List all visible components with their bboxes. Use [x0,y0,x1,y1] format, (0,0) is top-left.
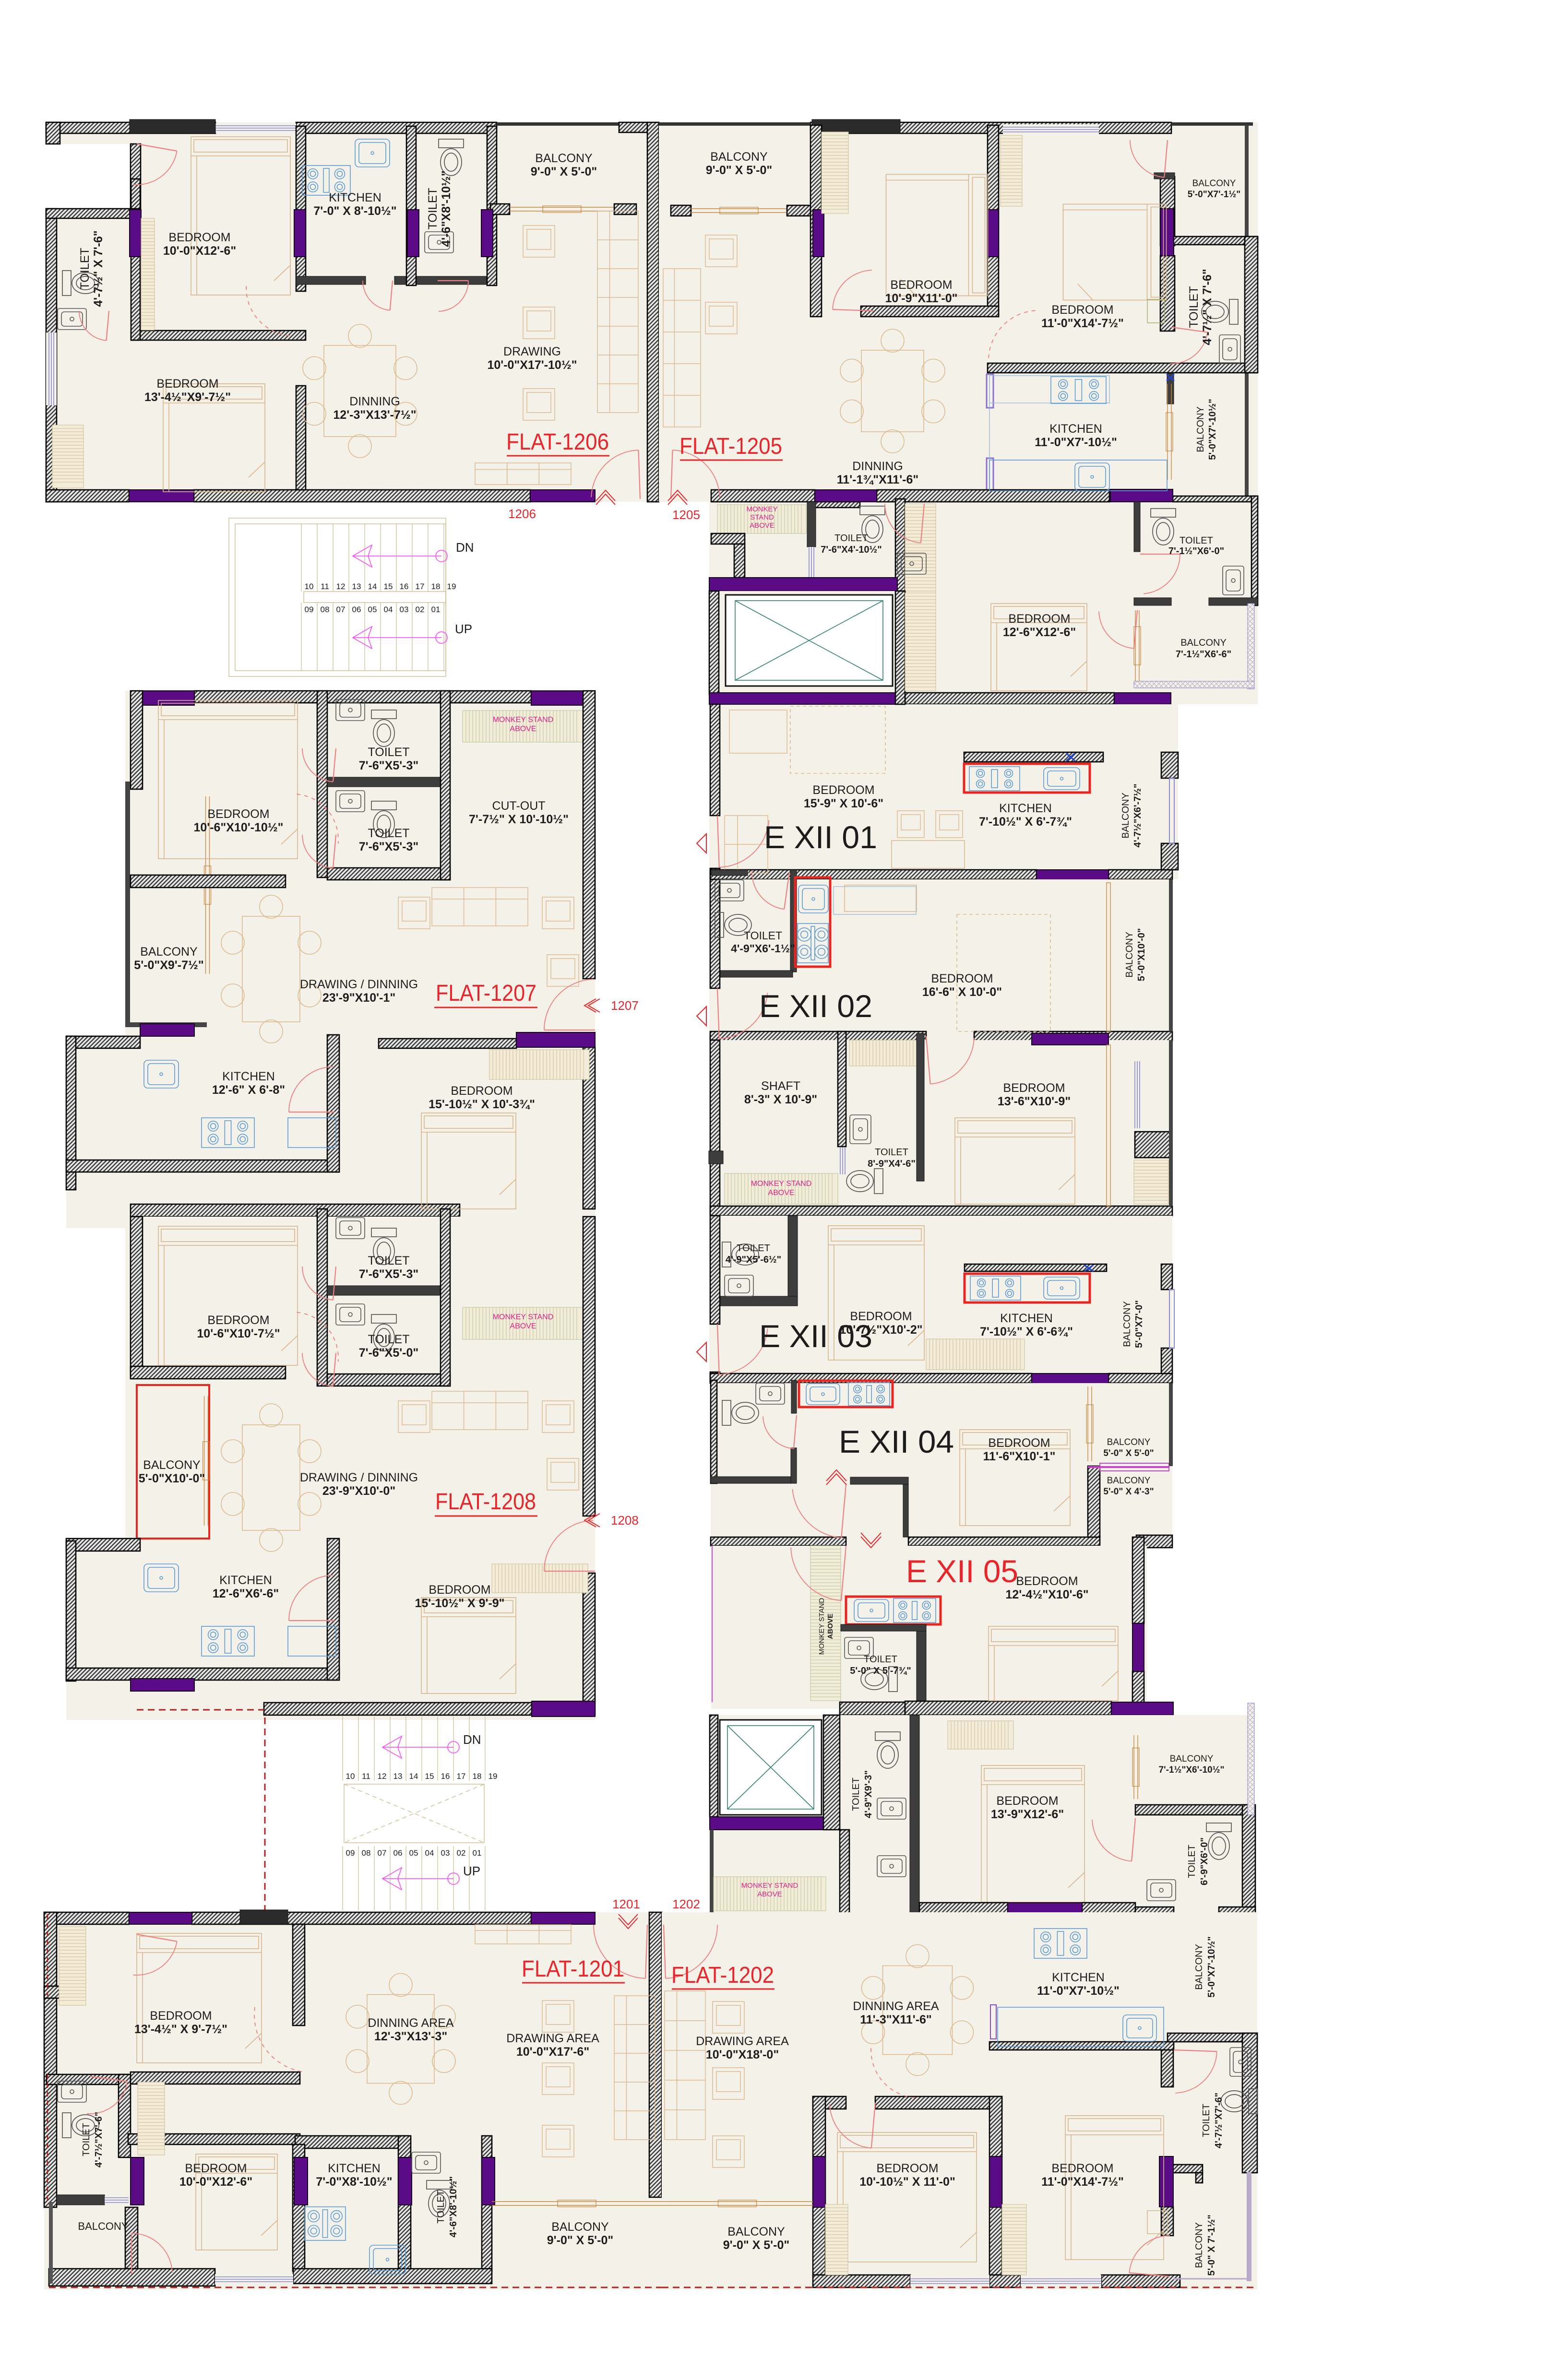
svg-text:7'-6"X5'-0": 7'-6"X5'-0" [359,1346,419,1360]
svg-text:KITCHEN: KITCHEN [219,1574,272,1587]
svg-text:10'-6"X10'-10½": 10'-6"X10'-10½" [193,821,283,834]
svg-text:BALCONY: BALCONY [1180,638,1227,648]
svg-text:13: 13 [352,582,361,591]
svg-text:5'-0"X10'-0": 5'-0"X10'-0" [139,1472,205,1485]
svg-text:18: 18 [473,1772,482,1781]
svg-text:11'-0"X14'-7½": 11'-0"X14'-7½" [1041,2175,1124,2189]
svg-text:05: 05 [409,1848,418,1858]
svg-text:DN: DN [456,540,474,555]
svg-text:06: 06 [393,1848,403,1858]
svg-text:10'-10½" X 11'-0": 10'-10½" X 11'-0" [859,2175,955,2189]
svg-text:7'-6"X5'-3": 7'-6"X5'-3" [359,759,419,772]
svg-text:BALCONY: BALCONY [78,2220,128,2232]
svg-text:5'-0"X7'-0": 5'-0"X7'-0" [1134,1300,1144,1348]
svg-text:BALCONY: BALCONY [1122,1301,1132,1347]
svg-text:STAND: STAND [750,513,774,521]
svg-text:DINNING AREA: DINNING AREA [853,2000,939,2013]
svg-text:10'-0"X12'-6": 10'-0"X12'-6" [179,2175,252,2189]
svg-text:13'-6"X10'-9": 13'-6"X10'-9" [998,1095,1071,1108]
svg-text:MONKEY: MONKEY [746,505,777,513]
svg-text:TOILET: TOILET [744,929,782,942]
svg-text:TOILET: TOILET [834,533,868,544]
svg-text:TOILET: TOILET [875,1147,908,1158]
svg-text:14: 14 [368,582,377,591]
svg-text:08: 08 [321,605,330,614]
svg-text:BEDROOM: BEDROOM [1003,1081,1065,1095]
svg-text:12'-3"X13'-7½": 12'-3"X13'-7½" [333,408,416,422]
svg-text:DRAWING AREA: DRAWING AREA [506,2032,599,2045]
svg-text:BALCONY: BALCONY [1124,932,1135,978]
svg-text:17: 17 [457,1772,466,1781]
svg-text:12'-6" X 6'-8": 12'-6" X 6'-8" [212,1083,285,1097]
svg-text:5'-0"X7'-1½": 5'-0"X7'-1½" [1188,189,1241,200]
svg-text:1205: 1205 [672,508,700,522]
svg-text:11'-0"X7'-10½": 11'-0"X7'-10½" [1035,436,1117,449]
svg-text:CUT-OUT: CUT-OUT [492,799,545,813]
svg-text:DINNING: DINNING [349,395,400,408]
svg-text:7'-6"X4'-10½": 7'-6"X4'-10½" [821,545,882,555]
svg-text:DN: DN [463,1732,481,1747]
svg-text:BEDROOM: BEDROOM [207,1314,269,1327]
svg-text:11'-0"X14'-7½": 11'-0"X14'-7½" [1041,317,1124,330]
svg-text:01: 01 [473,1848,482,1858]
svg-text:9'-0" X 5'-0": 9'-0" X 5'-0" [547,2234,613,2247]
svg-text:23'-9"X10'-1": 23'-9"X10'-1" [322,991,395,1005]
svg-text:12'-3"X13'-3": 12'-3"X13'-3" [374,2030,447,2043]
svg-text:16'-6" X 10'-0": 16'-6" X 10'-0" [922,985,1002,999]
svg-text:8'-9"X4'-6": 8'-9"X4'-6" [868,1159,916,1169]
svg-text:SHAFT: SHAFT [761,1079,800,1093]
svg-text:ABOVE: ABOVE [750,521,775,530]
svg-text:UP: UP [463,1864,480,1878]
svg-text:17: 17 [416,582,425,591]
svg-text:7'-6"X5'-3": 7'-6"X5'-3" [359,1267,419,1281]
svg-text:5'-0" X 4'-3": 5'-0" X 4'-3" [1103,1487,1154,1497]
svg-text:1202: 1202 [672,1897,700,1911]
svg-text:05: 05 [368,605,377,614]
svg-text:10: 10 [305,582,314,591]
svg-text:4'-9"X9'-3": 4'-9"X9'-3" [863,1770,874,1818]
svg-text:KITCHEN: KITCHEN [1049,422,1102,436]
svg-text:04: 04 [425,1848,434,1858]
svg-text:11: 11 [321,582,329,591]
svg-text:BALCONY: BALCONY [1107,1476,1151,1486]
svg-text:TOILET: TOILET [1180,535,1213,546]
svg-text:5'-0" X 7'-1½": 5'-0" X 7'-1½" [1206,2214,1217,2275]
svg-text:4'-9"X5'-6½": 4'-9"X5'-6½" [726,1255,781,1265]
svg-text:03: 03 [441,1848,450,1858]
svg-text:BEDROOM: BEDROOM [150,2009,212,2023]
svg-text:13'-4½"X9'-7½": 13'-4½"X9'-7½" [144,391,231,404]
svg-text:10'-0"X12'-6": 10'-0"X12'-6" [163,244,236,258]
svg-text:KITCHEN: KITCHEN [1052,1971,1105,1984]
svg-text:6'-9"X6'-0": 6'-9"X6'-0" [1199,1837,1210,1885]
svg-text:BEDROOM: BEDROOM [429,1583,490,1597]
svg-text:TOILET: TOILET [737,1243,770,1254]
svg-text:BEDROOM: BEDROOM [168,231,230,244]
svg-text:11'-3"X11'-6": 11'-3"X11'-6" [860,2013,932,2026]
svg-text:09: 09 [305,605,314,614]
svg-text:10: 10 [346,1772,355,1781]
svg-text:4'-9"X6'-1½": 4'-9"X6'-1½" [731,942,795,955]
svg-text:7'-1½"X6'-0": 7'-1½"X6'-0" [1168,546,1224,557]
svg-text:12'-6"X6'-6": 12'-6"X6'-6" [213,1587,279,1600]
svg-text:4'-7½"X7'-6": 4'-7½"X7'-6" [94,2112,104,2167]
svg-text:19: 19 [447,582,456,591]
svg-text:5'-0"X7'-10½": 5'-0"X7'-10½" [1207,399,1218,460]
svg-text:11: 11 [362,1772,370,1781]
svg-text:5'-0" X 5'-7¾": 5'-0" X 5'-7¾" [850,1666,911,1676]
svg-text:DRAWING: DRAWING [503,345,561,358]
svg-text:12'-6"X12'-6": 12'-6"X12'-6" [1003,626,1076,639]
svg-text:FLAT-1207: FLAT-1207 [436,981,536,1006]
svg-text:E XII 01: E XII 01 [764,819,877,855]
svg-text:E XII 05: E XII 05 [906,1553,1018,1589]
svg-text:14: 14 [409,1772,418,1781]
svg-text:FLAT-1201: FLAT-1201 [522,1956,624,1982]
svg-text:BEDROOM: BEDROOM [185,2162,247,2175]
svg-text:4'-7½" X 7'-6": 4'-7½" X 7'-6" [92,230,105,307]
svg-text:MONKEY STAND: MONKEY STAND [751,1180,812,1188]
svg-text:DINNING AREA: DINNING AREA [368,2016,454,2030]
svg-text:07: 07 [336,605,346,614]
svg-text:BALCONY: BALCONY [535,152,593,165]
svg-text:KITCHEN: KITCHEN [329,191,381,204]
svg-text:4'-6"X8'-10½": 4'-6"X8'-10½" [448,2176,459,2237]
svg-text:1206: 1206 [508,507,536,521]
svg-text:KITCHEN: KITCHEN [999,802,1052,815]
svg-text:BEDROOM: BEDROOM [207,807,269,821]
svg-text:9'-0" X 5'-0": 9'-0" X 5'-0" [706,164,772,177]
svg-text:9'-0" X 5'-0": 9'-0" X 5'-0" [723,2238,789,2252]
svg-text:BEDROOM: BEDROOM [156,377,218,391]
svg-text:23'-9"X10'-0": 23'-9"X10'-0" [322,1484,395,1498]
svg-text:DRAWING AREA: DRAWING AREA [696,2035,789,2048]
svg-text:BEDROOM: BEDROOM [876,2162,938,2175]
svg-text:BALCONY: BALCONY [1192,178,1236,189]
svg-text:E XII 03: E XII 03 [759,1318,872,1354]
svg-text:4'-7½" X 7'-6": 4'-7½" X 7'-6" [1201,269,1214,345]
svg-text:BALCONY: BALCONY [1170,1754,1214,1764]
svg-text:MONKEY STAND: MONKEY STAND [741,1882,798,1890]
svg-text:12: 12 [336,582,346,591]
svg-text:12: 12 [378,1772,387,1781]
svg-text:10'-9"X11'-0": 10'-9"X11'-0" [885,292,958,305]
svg-text:19: 19 [489,1772,498,1781]
svg-text:15'-9" X 10'-6": 15'-9" X 10'-6" [804,797,883,810]
svg-text:DRAWING / DINNING: DRAWING / DINNING [300,1471,418,1484]
svg-text:07: 07 [378,1848,387,1858]
svg-text:BEDROOM: BEDROOM [890,278,952,292]
svg-text:TOILET: TOILET [851,1777,861,1811]
svg-text:TOILET: TOILET [78,248,92,289]
svg-text:4'-7½"X7'-6": 4'-7½"X7'-6" [1214,2093,1224,2148]
svg-text:03: 03 [400,605,409,614]
svg-text:BALCONY: BALCONY [140,945,198,959]
svg-text:BEDROOM: BEDROOM [996,1794,1058,1808]
svg-text:MONKEY STAND: MONKEY STAND [493,1313,554,1321]
svg-text:10'-6"X10'-7½": 10'-6"X10'-7½" [197,1327,280,1340]
svg-text:TOILET: TOILET [436,2190,446,2224]
svg-text:TOILET: TOILET [1187,286,1201,328]
svg-text:01: 01 [431,605,441,614]
svg-text:BEDROOM: BEDROOM [1051,2162,1113,2175]
svg-text:10'-0"X17'-6": 10'-0"X17'-6" [516,2045,589,2059]
svg-text:5'-0"X10'-0": 5'-0"X10'-0" [1136,928,1147,982]
svg-text:BALCONY: BALCONY [1194,1944,1204,1990]
svg-text:4'-7½"X6'-7½": 4'-7½"X6'-7½" [1132,784,1143,848]
svg-text:1207: 1207 [611,998,639,1013]
svg-text:11'-6"X10'-1": 11'-6"X10'-1" [983,1450,1056,1463]
svg-text:4'-6"X8'-10½": 4'-6"X8'-10½" [440,170,453,247]
svg-text:1208: 1208 [611,1513,639,1527]
svg-text:10'-0"X18'-0": 10'-0"X18'-0" [706,2048,779,2061]
svg-text:15: 15 [384,582,393,591]
svg-text:BALCONY: BALCONY [1120,793,1131,839]
svg-text:MONKEY STAND: MONKEY STAND [818,1598,826,1655]
svg-text:13'-4½" X 9'-7½": 13'-4½" X 9'-7½" [134,2023,227,2036]
svg-text:DINNING: DINNING [852,460,903,473]
svg-text:BEDROOM: BEDROOM [1008,612,1070,626]
svg-text:11'-0"X7'-10½": 11'-0"X7'-10½" [1037,1984,1120,1998]
svg-text:15: 15 [425,1772,434,1781]
svg-text:UP: UP [455,622,472,636]
svg-text:5'-0"X7'-10½": 5'-0"X7'-10½" [1206,1936,1217,1997]
svg-text:7'-1½"X6'-6": 7'-1½"X6'-6" [1176,649,1231,660]
svg-text:TOILET: TOILET [1187,1845,1197,1878]
svg-text:TOILET: TOILET [1201,2104,1212,2137]
svg-text:7'-10½" X 6'-6¾": 7'-10½" X 6'-6¾" [980,1325,1073,1338]
svg-text:1201: 1201 [612,1897,640,1911]
svg-text:8'-3" X 10'-9": 8'-3" X 10'-9" [744,1093,817,1106]
svg-text:TOILET: TOILET [81,2123,92,2156]
svg-text:KITCHEN: KITCHEN [328,2162,381,2175]
svg-text:BALCONY: BALCONY [1107,1437,1151,1447]
svg-text:5'-0" X 5'-0": 5'-0" X 5'-0" [1103,1448,1154,1458]
svg-text:08: 08 [362,1848,371,1858]
svg-text:FLAT-1205: FLAT-1205 [679,434,782,459]
svg-text:ABOVE: ABOVE [510,725,536,733]
svg-text:10'-0"X17'-10½": 10'-0"X17'-10½" [487,358,577,372]
svg-text:DRAWING / DINNING: DRAWING / DINNING [300,978,418,991]
svg-text:15'-10½" X 10'-3¾": 15'-10½" X 10'-3¾" [429,1098,535,1111]
svg-text:FLAT-1202: FLAT-1202 [671,1963,774,1988]
svg-text:13: 13 [393,1772,403,1781]
svg-text:MONKEY STAND: MONKEY STAND [493,716,554,724]
svg-text:ABOVE: ABOVE [826,1613,834,1639]
svg-text:BEDROOM: BEDROOM [812,783,874,797]
svg-text:9'-0" X 5'-0": 9'-0" X 5'-0" [531,165,597,178]
svg-text:7'-10½" X 6'-7¾": 7'-10½" X 6'-7¾" [979,815,1072,829]
svg-text:16: 16 [400,582,409,591]
svg-text:BEDROOM: BEDROOM [931,972,993,985]
svg-text:TOILET: TOILET [864,1654,897,1665]
svg-text:BALCONY: BALCONY [1194,2222,1204,2268]
svg-text:13'-9"X12'-6": 13'-9"X12'-6" [991,1808,1064,1821]
svg-text:7'-6"X5'-3": 7'-6"X5'-3" [359,840,419,853]
svg-text:02: 02 [416,605,425,614]
svg-text:KITCHEN: KITCHEN [222,1070,275,1083]
svg-text:15'-10½" X 9'-9": 15'-10½" X 9'-9" [415,1597,504,1610]
svg-text:TOILET: TOILET [368,1254,409,1267]
svg-text:ABOVE: ABOVE [757,1890,782,1898]
svg-text:BEDROOM: BEDROOM [988,1436,1050,1450]
svg-text:KITCHEN: KITCHEN [1000,1312,1053,1325]
svg-text:7'-0"X8'-10½": 7'-0"X8'-10½" [316,2175,392,2189]
svg-text:BALCONY: BALCONY [710,150,768,164]
svg-text:FLAT-1206: FLAT-1206 [506,429,609,455]
svg-text:E XII 02: E XII 02 [759,988,872,1024]
svg-text:TOILET: TOILET [368,827,409,840]
svg-text:ABOVE: ABOVE [768,1189,794,1197]
svg-text:E XII 04: E XII 04 [839,1424,954,1459]
svg-text:04: 04 [384,605,393,614]
svg-text:BEDROOM: BEDROOM [1051,303,1113,317]
svg-text:BEDROOM: BEDROOM [1016,1575,1078,1588]
svg-text:11'-1¾"X11'-6": 11'-1¾"X11'-6" [837,473,918,486]
svg-text:06: 06 [352,605,361,614]
svg-text:7'-0" X 8'-10½": 7'-0" X 8'-10½" [313,204,396,218]
svg-text:FLAT-1208: FLAT-1208 [435,1489,536,1515]
svg-text:09: 09 [346,1848,355,1858]
svg-text:7'-1½"X6'-10½": 7'-1½"X6'-10½" [1159,1765,1225,1775]
svg-text:TOILET: TOILET [368,746,409,759]
svg-text:BALCONY: BALCONY [551,2220,609,2234]
svg-text:5'-0"X9'-7½": 5'-0"X9'-7½" [134,959,203,972]
svg-text:BALCONY: BALCONY [727,2225,785,2238]
svg-text:16: 16 [441,1772,450,1781]
svg-text:18: 18 [431,582,441,591]
svg-text:TOILET: TOILET [426,188,440,229]
svg-text:TOILET: TOILET [368,1333,409,1346]
svg-text:12'-4½"X10'-6": 12'-4½"X10'-6" [1005,1588,1088,1601]
svg-text:BALCONY: BALCONY [143,1458,201,1472]
svg-text:BEDROOM: BEDROOM [451,1084,512,1098]
svg-text:02: 02 [457,1848,466,1858]
svg-text:ABOVE: ABOVE [510,1322,536,1330]
svg-text:BALCONY: BALCONY [1195,406,1206,452]
svg-text:7'-7½" X 10'-10½": 7'-7½" X 10'-10½" [469,813,569,826]
